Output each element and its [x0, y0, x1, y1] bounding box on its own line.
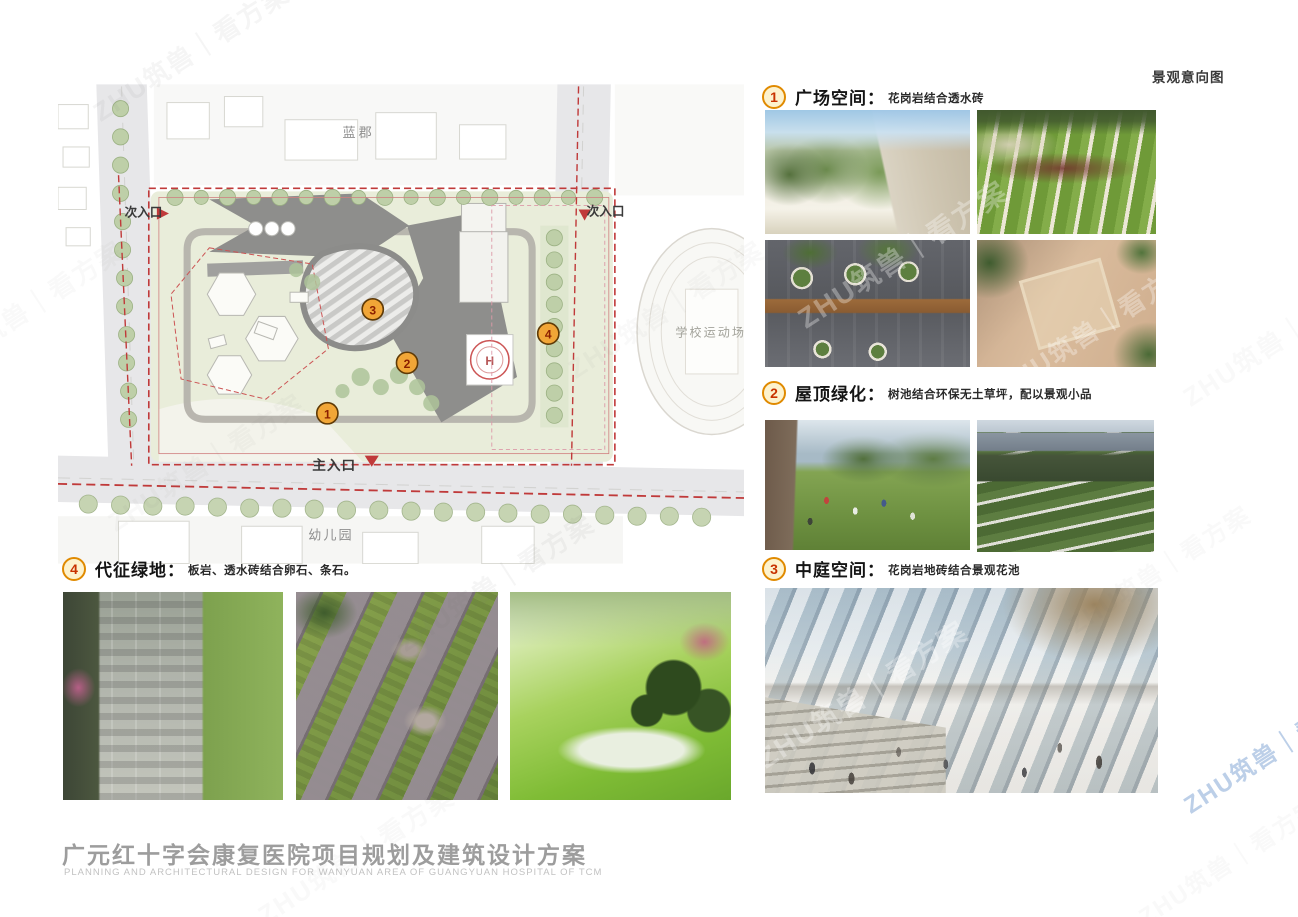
- section-3-colon: ：: [867, 556, 884, 581]
- photo-stone-path: [63, 592, 283, 800]
- label-entrance-east: 次入口: [587, 204, 625, 219]
- plan-marker-4: 4: [538, 323, 559, 344]
- section-1-description: 花岗岩结合透水砖: [888, 87, 984, 106]
- section-1-heading: 1 广场空间 ： 花岗岩结合透水砖: [762, 84, 984, 109]
- project-title-english: PLANNING AND ARCHITECTURAL DESIGN FOR WA…: [64, 867, 602, 878]
- site-plan: H: [58, 84, 744, 564]
- section-4-description: 板岩、透水砖结合卵石、条石。: [188, 559, 356, 578]
- svg-text:2: 2: [404, 357, 411, 371]
- page-corner-label: 景观意向图: [1152, 66, 1225, 86]
- tower-building: [460, 232, 508, 303]
- photo-dark-paving-courtyard: [765, 240, 970, 367]
- section-1-title: 广场空间: [795, 84, 867, 109]
- section-4-heading: 4 代征绿地 ： 板岩、透水砖结合卵石、条石。: [62, 556, 356, 581]
- helipad-letter: H: [485, 354, 494, 368]
- section-2-heading: 2 屋顶绿化 ： 树池结合环保无土草坪，配以景观小品: [762, 380, 1092, 405]
- svg-text:3: 3: [369, 303, 376, 317]
- photo-courtyard-aerial: [977, 240, 1156, 367]
- photo-terraced-lawn: [977, 110, 1156, 234]
- label-school-field: 学校运动场: [675, 325, 744, 340]
- section-4-colon: ：: [167, 556, 184, 581]
- photo-garden-shrubs: [510, 592, 731, 800]
- photo-atrium-interior: [765, 588, 1158, 793]
- atrium-stairs: [765, 680, 946, 793]
- section-1-number-badge: 1: [762, 85, 786, 109]
- presentation-board: 景观意向图: [0, 0, 1298, 917]
- watermark: ZHU筑兽｜看方案: [1130, 788, 1298, 917]
- atrium-building-roof: [303, 246, 416, 348]
- courtyard-square-feature: [1019, 258, 1120, 351]
- label-kindergarten: 幼儿园: [308, 527, 353, 542]
- plan-marker-1: 1: [317, 403, 338, 424]
- section-3-number-badge: 3: [762, 557, 786, 581]
- plan-marker-3: 3: [362, 299, 383, 320]
- svg-text:1: 1: [324, 407, 331, 421]
- label-residential: 蓝郡: [342, 125, 374, 140]
- photo-green-roof-skyline: [977, 420, 1154, 552]
- tower-upper: [462, 203, 506, 233]
- section-3-title: 中庭空间: [795, 556, 867, 581]
- section-2-title: 屋顶绿化: [795, 380, 867, 405]
- section-2-colon: ：: [867, 380, 884, 405]
- context-wash-northeast: [615, 84, 744, 195]
- svg-text:4: 4: [545, 328, 552, 342]
- watermark: ZHU筑兽｜看方案: [1175, 259, 1298, 414]
- project-title-chinese: 广元红十字会康复医院项目规划及建筑设计方案: [62, 836, 587, 870]
- section-4-title: 代征绿地: [95, 556, 167, 581]
- section-4-number-badge: 4: [62, 557, 86, 581]
- watermark: ZHU筑兽｜看方案: [1175, 676, 1298, 820]
- helipad: H: [467, 335, 513, 385]
- photo-slate-slabs: [296, 592, 498, 800]
- section-2-description: 树池结合环保无土草坪，配以景观小品: [888, 383, 1092, 402]
- label-entrance-west: 次入口: [125, 205, 163, 220]
- section-3-heading: 3 中庭空间 ： 花岗岩地砖结合景观花池: [762, 556, 1020, 581]
- photo-plaza-paths: [765, 110, 970, 234]
- section-1-colon: ：: [867, 84, 884, 109]
- plan-marker-2: 2: [396, 352, 417, 373]
- photo-roof-lawn-people: [765, 420, 970, 550]
- section-2-number-badge: 2: [762, 381, 786, 405]
- section-3-description: 花岗岩地砖结合景观花池: [888, 559, 1020, 578]
- label-main-entrance: 主入口: [312, 457, 356, 473]
- plaza-circles: [249, 222, 295, 236]
